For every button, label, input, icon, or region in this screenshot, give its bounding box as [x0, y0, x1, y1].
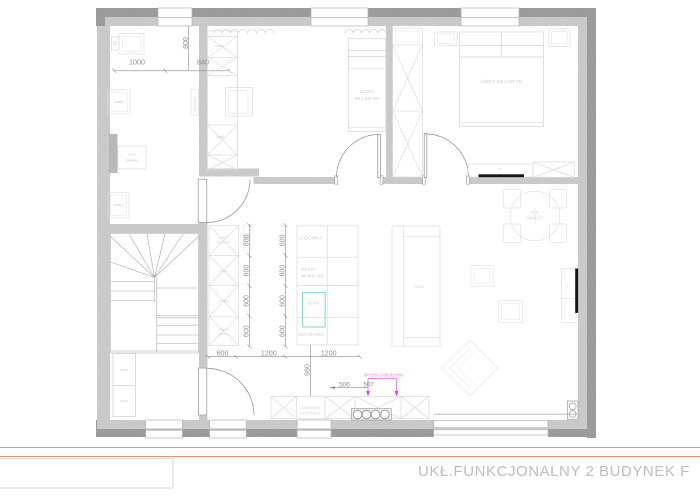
svg-text:600: 600	[280, 325, 287, 337]
svg-text:szafki: szafki	[220, 269, 228, 273]
svg-text:zabudowy: zabudowy	[217, 332, 231, 336]
svg-text:600: 600	[244, 325, 251, 337]
svg-text:800: 800	[183, 37, 190, 49]
svg-text:600: 600	[244, 265, 251, 277]
svg-text:szafa: szafa	[215, 44, 223, 48]
svg-text:ZMYWARKA: ZMYWARKA	[298, 332, 325, 337]
svg-text:ŁÓŻKO 160 x 200 CM: ŁÓŻKO 160 x 200 CM	[481, 79, 523, 84]
svg-text:600: 600	[217, 348, 229, 357]
svg-text:ZLEW: ZLEW	[308, 301, 319, 306]
svg-text:507: 507	[363, 382, 374, 389]
svg-text:mała: mała	[128, 153, 135, 157]
svg-text:WYSPA ZABUDOWA: WYSPA ZABUDOWA	[364, 373, 404, 378]
svg-text:wysokie: wysokie	[218, 327, 229, 331]
svg-text:ZABUDOWA: ZABUDOWA	[301, 406, 321, 410]
svg-text:garderoba: garderoba	[217, 240, 231, 244]
svg-text:WORKI (N): WORKI (N)	[301, 274, 324, 279]
svg-text:90 x 200 CM: 90 x 200 CM	[355, 96, 379, 101]
svg-text:szuflady: szuflady	[218, 299, 230, 303]
svg-text:1200: 1200	[321, 348, 337, 357]
svg-text:TV: TV	[566, 285, 570, 289]
svg-text:lodówka: lodówka	[126, 159, 139, 163]
svg-text:LODÓWKA: LODÓWKA	[299, 235, 323, 241]
svg-text:SOFA: SOFA	[414, 285, 424, 289]
svg-text:OKRĄGŁY: OKRĄGŁY	[527, 217, 544, 221]
svg-text:600: 600	[244, 295, 251, 307]
svg-text:600: 600	[280, 234, 287, 246]
svg-text:STÓŁ: STÓŁ	[531, 210, 540, 215]
svg-text:pralka: pralka	[114, 100, 123, 104]
svg-text:kocioł: kocioł	[114, 203, 123, 207]
svg-text:ŁÓŻKO: ŁÓŻKO	[360, 89, 375, 94]
svg-text:KUCHENNA: KUCHENNA	[301, 412, 321, 416]
svg-text:600: 600	[280, 265, 287, 277]
svg-text:600: 600	[280, 295, 287, 307]
svg-text:wnęka: wnęka	[219, 235, 228, 239]
svg-text:szafa: szafa	[216, 135, 224, 139]
svg-text:1200: 1200	[261, 348, 277, 357]
svg-text:odkurzacz: odkurzacz	[193, 96, 197, 111]
svg-text:UKŁ.FUNKCJONALNY 2 BUDYNEK F: UKŁ.FUNKCJONALNY 2 BUDYNEK F	[418, 463, 690, 480]
svg-text:600: 600	[244, 234, 251, 246]
svg-text:980: 980	[304, 364, 311, 376]
svg-text:1000: 1000	[129, 58, 145, 67]
svg-text:PŁYTA: PŁYTA	[302, 267, 316, 272]
svg-text:szafa: szafa	[120, 368, 128, 372]
svg-text:szafa: szafa	[120, 399, 128, 403]
svg-text:506: 506	[339, 382, 350, 389]
